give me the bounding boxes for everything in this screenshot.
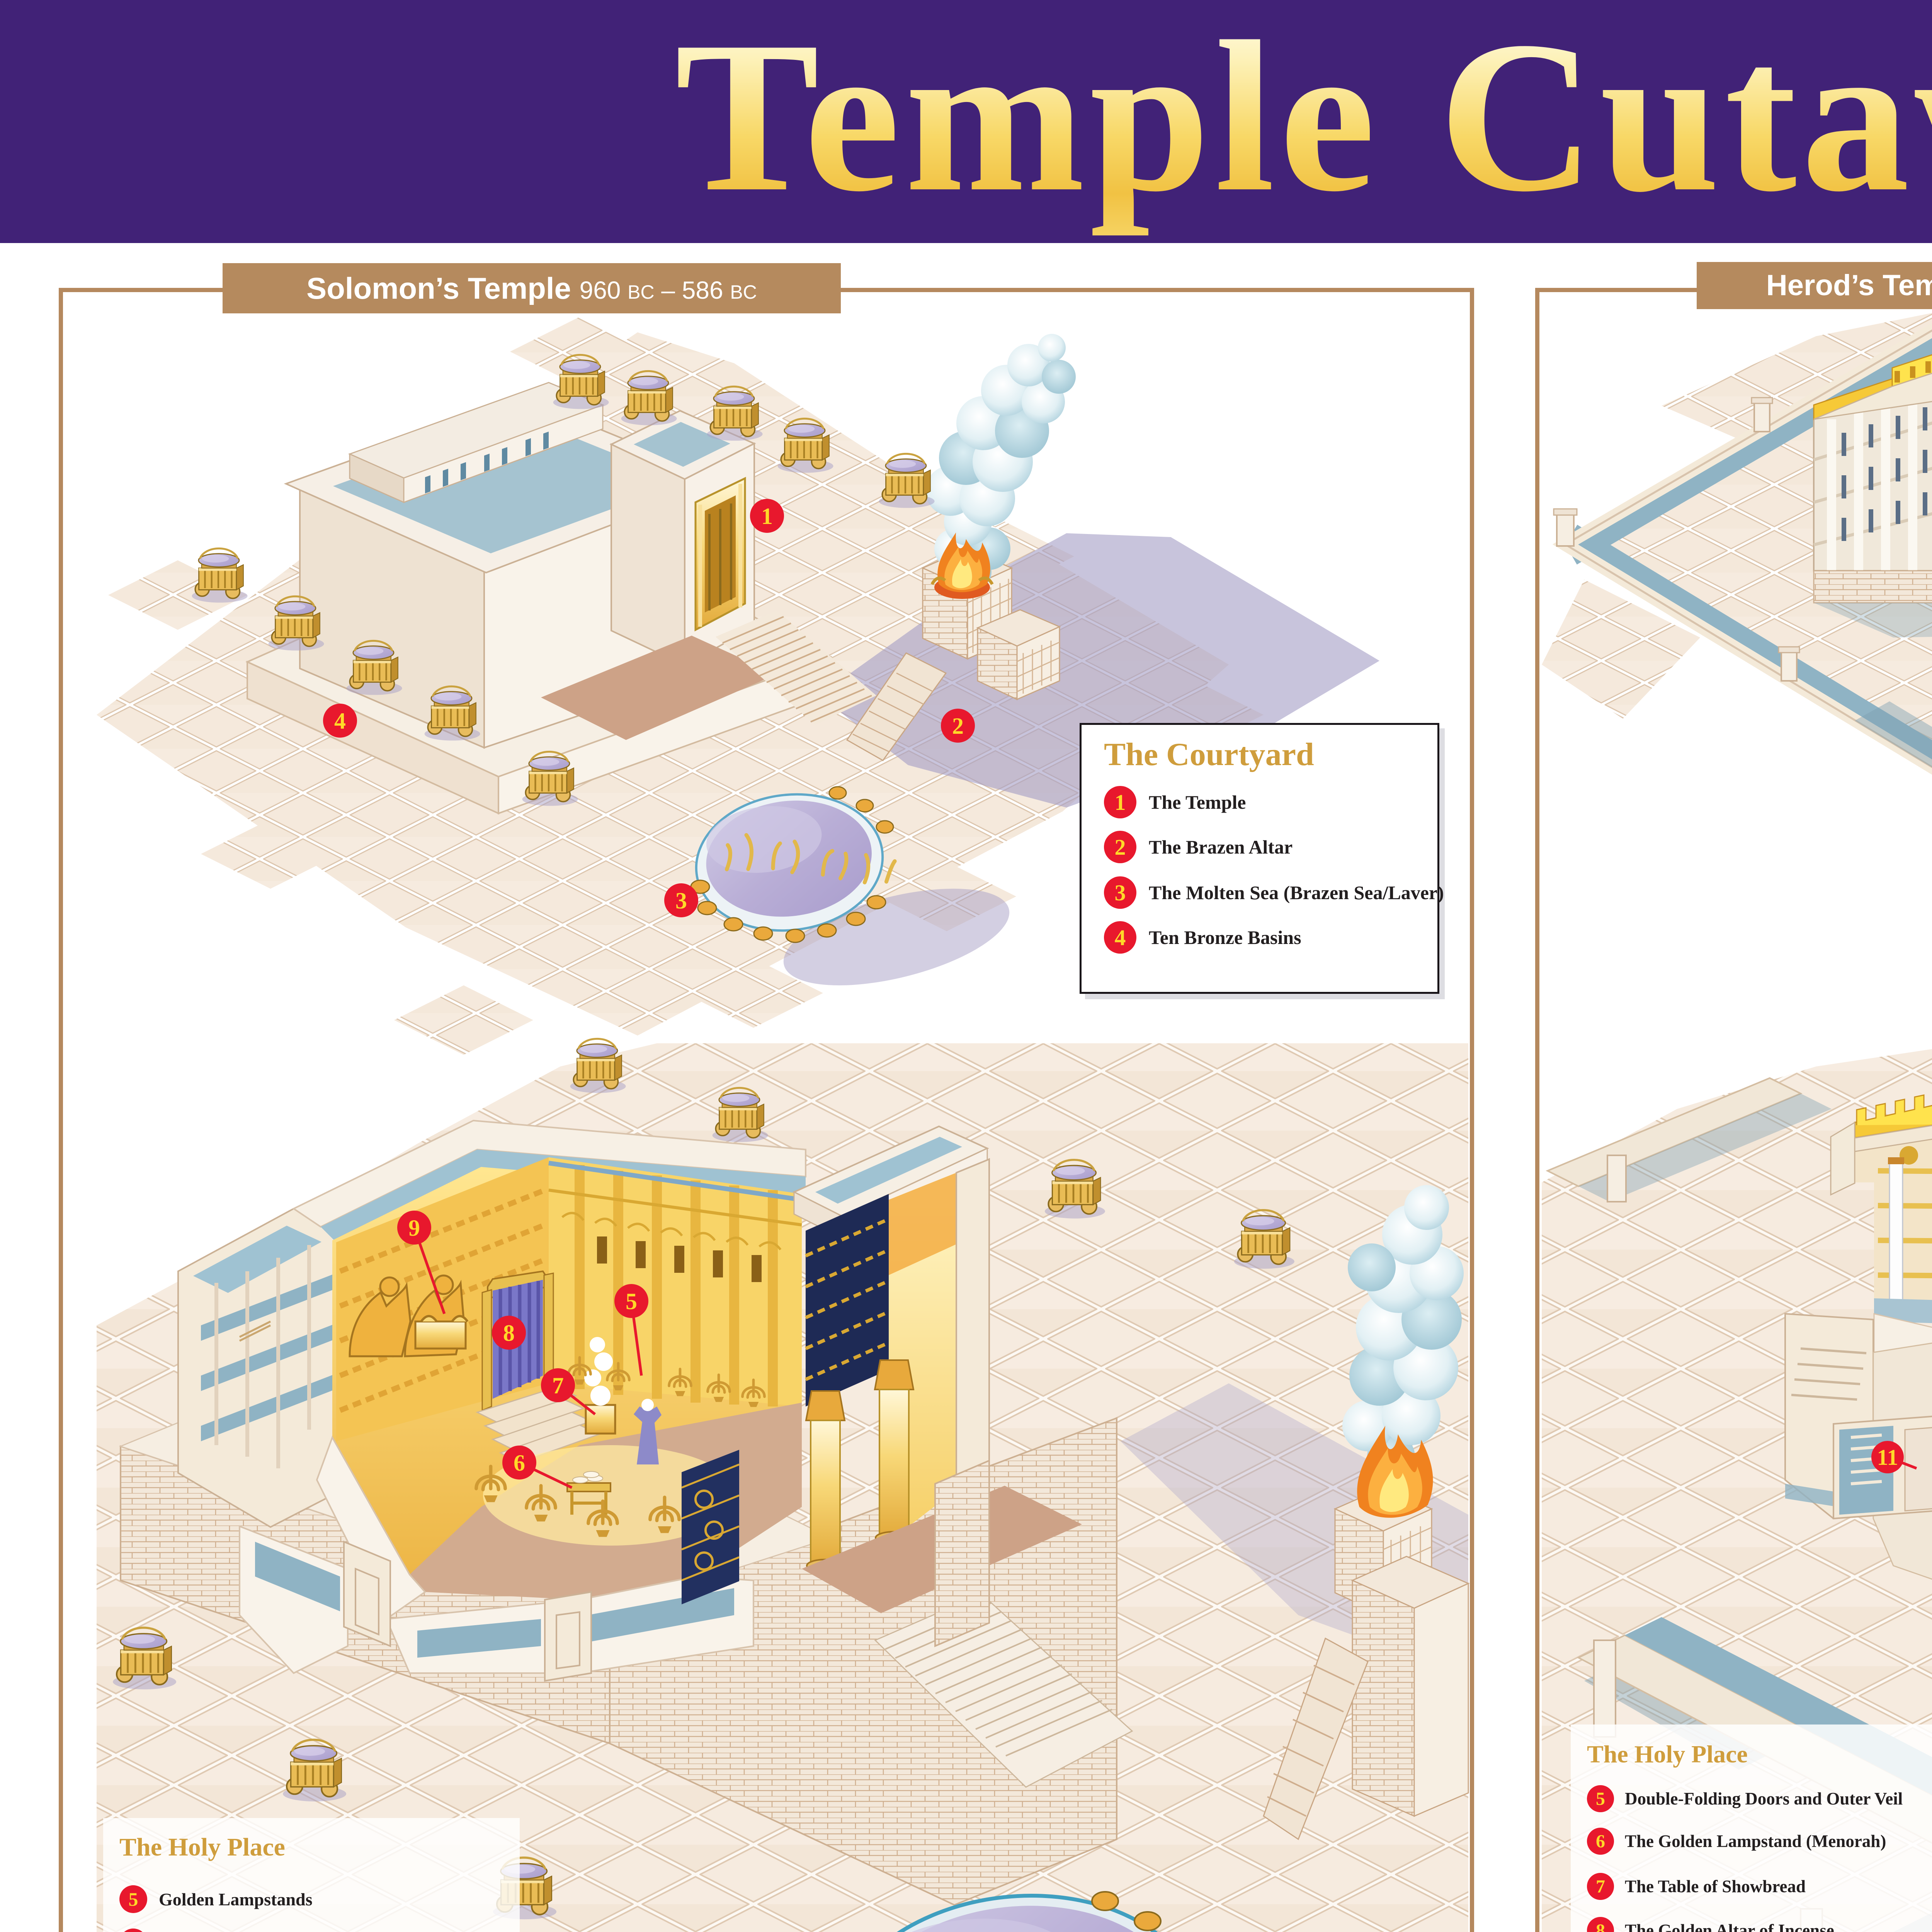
svg-text:6: 6 [514, 1450, 525, 1476]
svg-text:5: 5 [626, 1289, 637, 1314]
svg-text:9: 9 [408, 1215, 420, 1241]
svg-text:8: 8 [503, 1320, 515, 1346]
svg-text:2: 2 [952, 713, 964, 739]
svg-text:7: 7 [552, 1373, 564, 1398]
svg-text:1: 1 [761, 503, 773, 529]
svg-text:3: 3 [675, 888, 687, 913]
svg-text:11: 11 [1877, 1445, 1898, 1470]
svg-text:4: 4 [334, 708, 346, 734]
